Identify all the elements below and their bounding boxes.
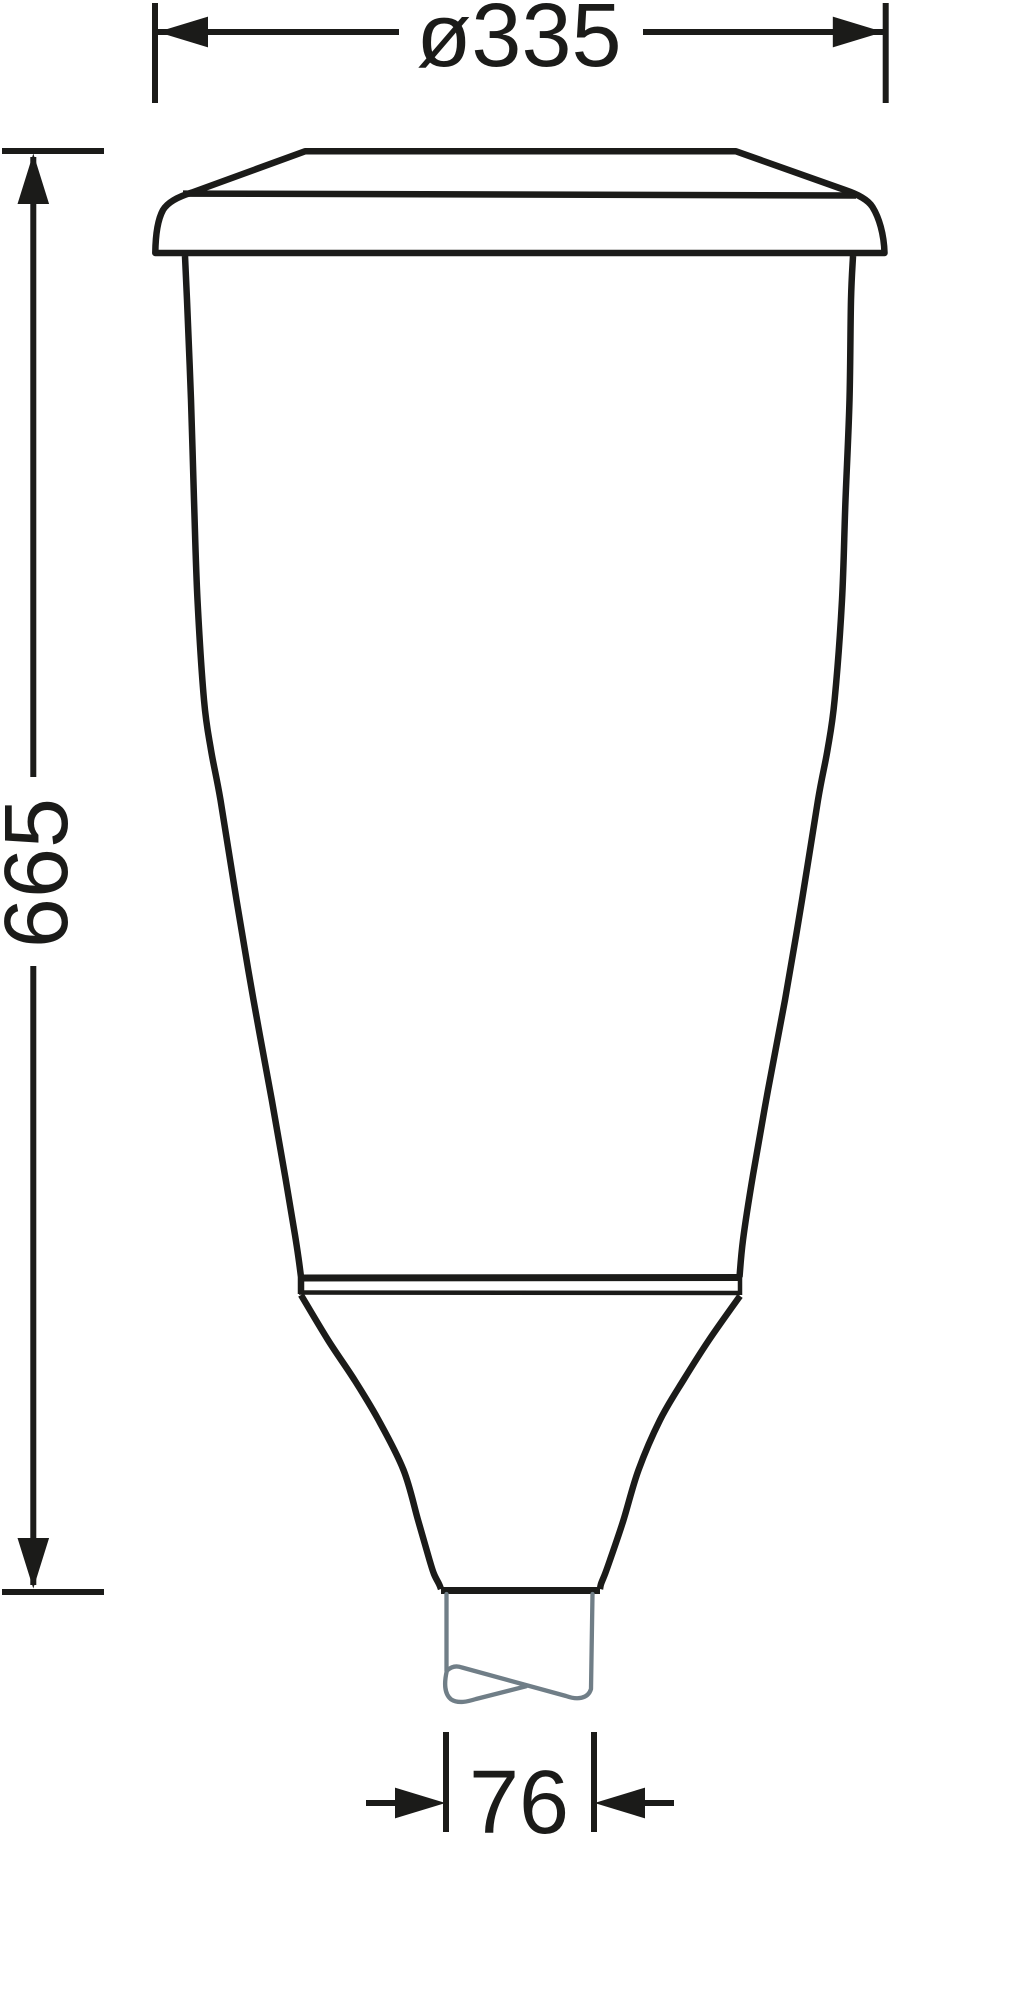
svg-text:665: 665 <box>0 798 87 948</box>
svg-text:76: 76 <box>469 1753 569 1853</box>
svg-text:ø335: ø335 <box>416 0 621 86</box>
